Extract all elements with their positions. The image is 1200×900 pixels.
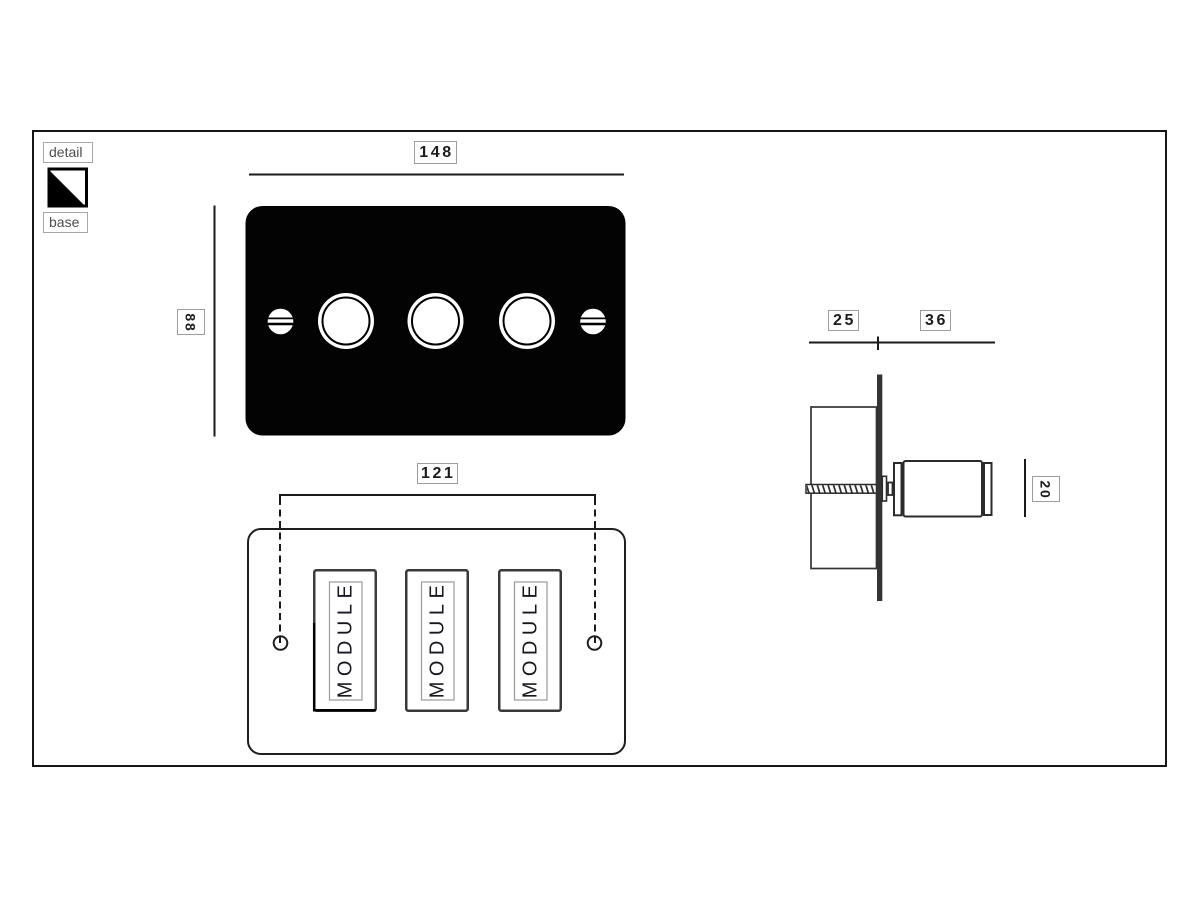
svg-text:MODULE: MODULE [427,580,449,699]
svg-text:MODULE: MODULE [520,580,542,699]
svg-text:MODULE: MODULE [335,580,357,699]
